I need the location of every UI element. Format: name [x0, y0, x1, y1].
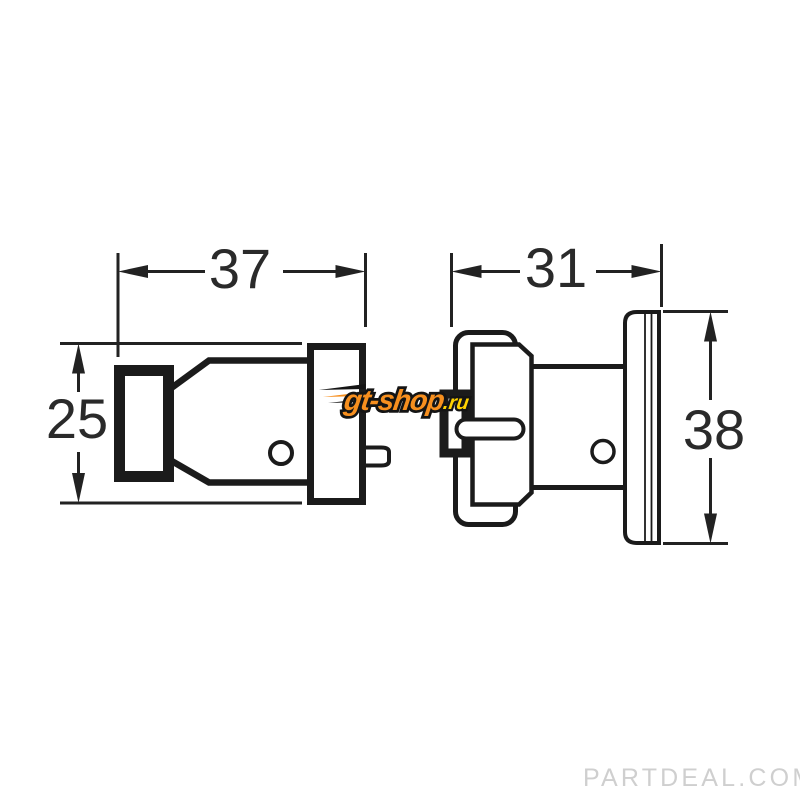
watermark-brand: gt-shop [341, 385, 446, 417]
partdeal-watermark: PARTDEAL.COM [583, 764, 800, 792]
dim-31-value: 31 [525, 236, 587, 299]
dim-25-arrow-up [72, 344, 85, 374]
dimension-37: 37 [118, 237, 366, 357]
plug-drawing [120, 347, 390, 502]
dim-37-arrow-right [336, 265, 366, 278]
socket-hole [592, 441, 614, 463]
dim-38-value: 38 [683, 398, 745, 461]
plug-hole [270, 442, 292, 464]
diagram-canvas: 37 25 31 [0, 0, 800, 800]
dim-31-arrow-right [632, 265, 662, 278]
plug-body-top-outline [170, 361, 309, 390]
technical-diagram: 37 25 31 [0, 0, 800, 800]
dim-37-arrow-left [118, 265, 148, 278]
dim-38-arrow-up [704, 312, 717, 342]
watermark-tld: .ru [442, 392, 471, 414]
dim-38-arrow-down [704, 514, 717, 544]
plug-terminal-pin [362, 448, 389, 466]
socket-drawing [444, 312, 659, 543]
plug-socket-opening [120, 371, 169, 477]
plug-flange [311, 347, 363, 502]
socket-flange [625, 312, 659, 543]
dim-37-value: 37 [209, 237, 271, 300]
dim-31-arrow-left [452, 265, 482, 278]
dim-25-value: 25 [46, 387, 108, 450]
dimension-38: 38 [663, 312, 745, 544]
socket-slot [457, 420, 524, 439]
dim-25-arrow-down [72, 473, 85, 503]
